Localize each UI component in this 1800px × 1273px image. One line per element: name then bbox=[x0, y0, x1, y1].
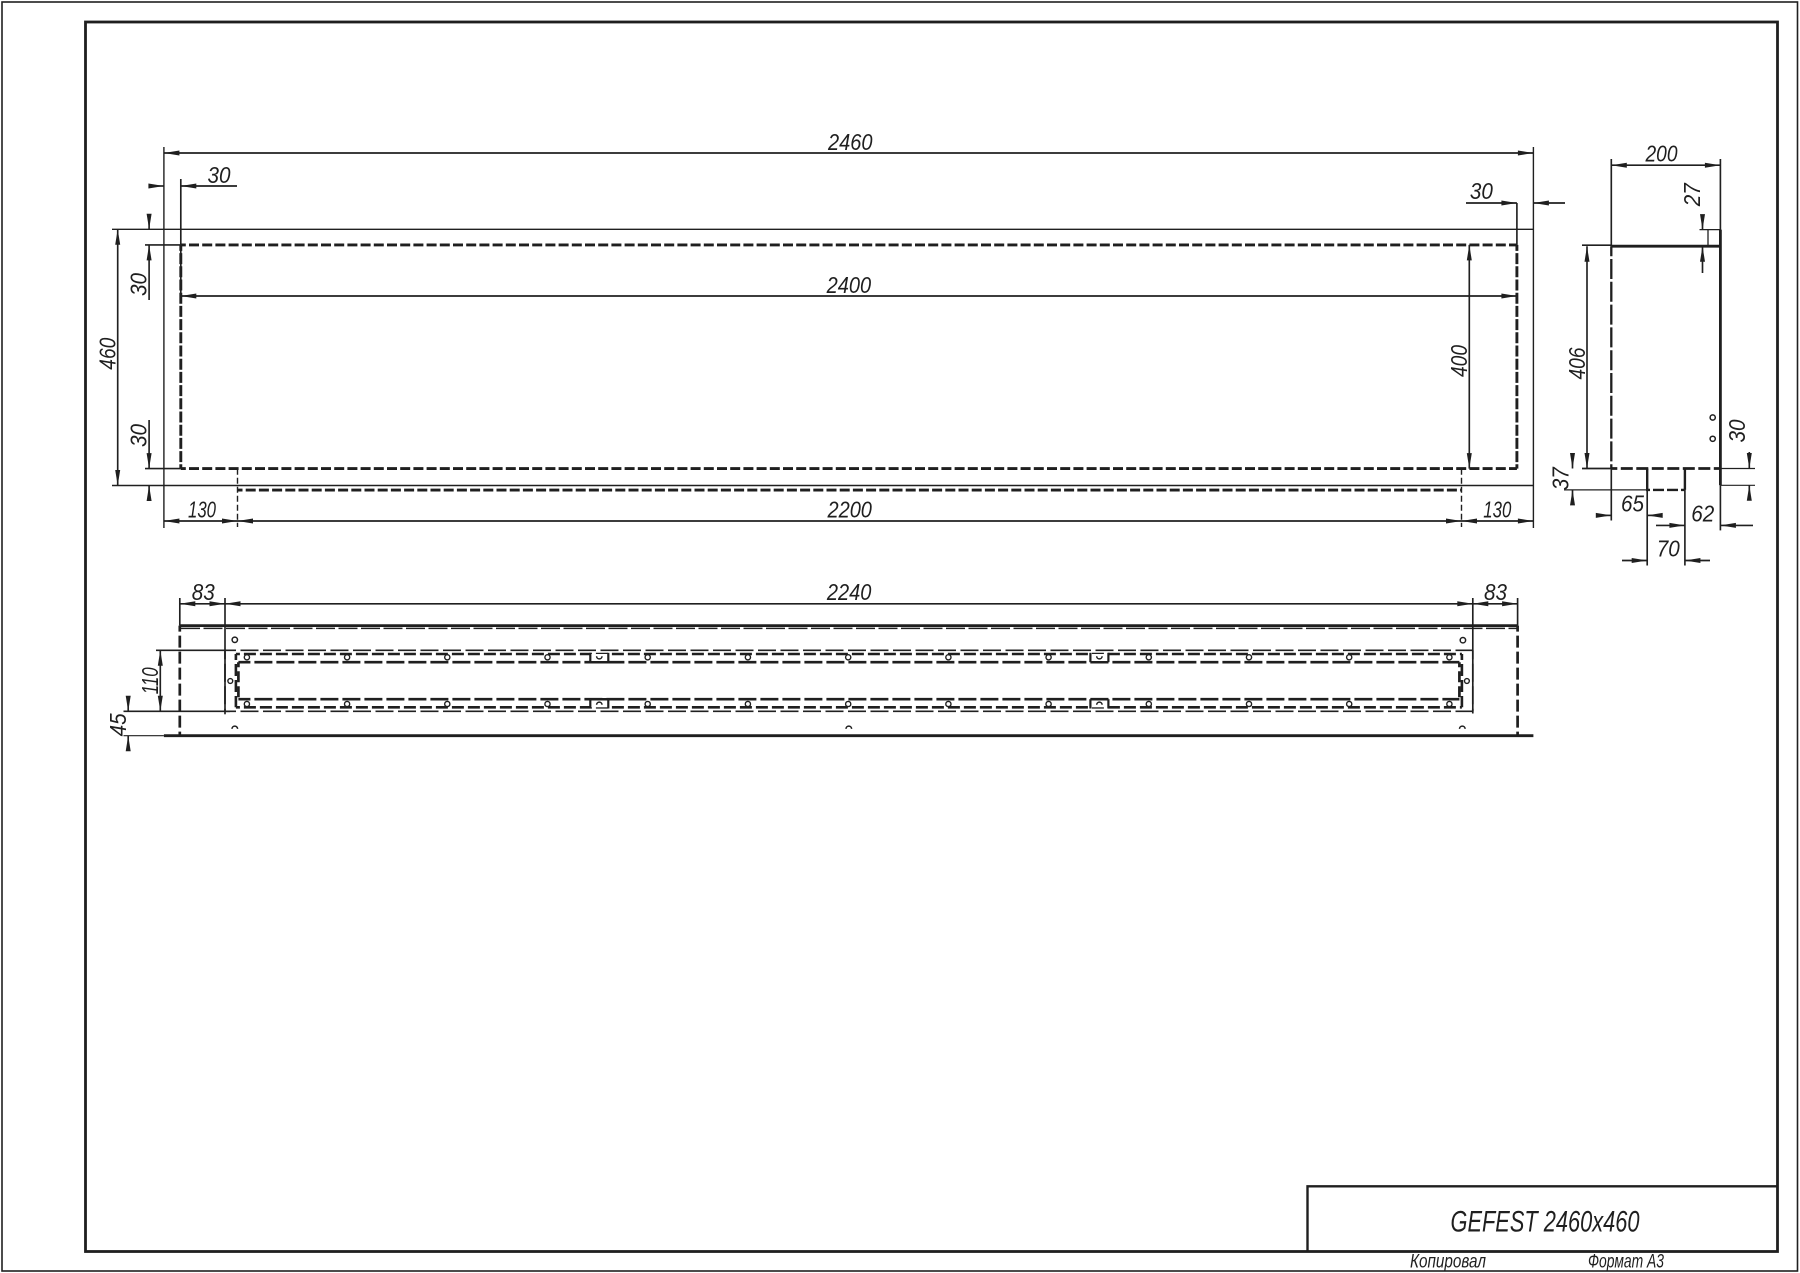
svg-text:2200: 2200 bbox=[827, 496, 872, 522]
svg-text:Копировал: Копировал bbox=[1410, 1252, 1486, 1273]
svg-text:GEFEST 2460x460: GEFEST 2460x460 bbox=[1451, 1206, 1640, 1239]
svg-text:2240: 2240 bbox=[826, 579, 871, 605]
svg-text:406: 406 bbox=[1564, 347, 1590, 380]
svg-text:400: 400 bbox=[1446, 345, 1472, 377]
svg-text:65: 65 bbox=[1621, 491, 1645, 517]
svg-text:27: 27 bbox=[1679, 182, 1705, 207]
svg-text:200: 200 bbox=[1645, 141, 1678, 167]
svg-text:45: 45 bbox=[105, 713, 131, 737]
svg-text:30: 30 bbox=[1470, 178, 1493, 204]
svg-text:83: 83 bbox=[1484, 579, 1507, 605]
svg-text:62: 62 bbox=[1691, 501, 1714, 527]
svg-text:2400: 2400 bbox=[826, 272, 871, 298]
svg-text:37: 37 bbox=[1548, 466, 1574, 490]
svg-text:30: 30 bbox=[126, 424, 152, 447]
svg-text:30: 30 bbox=[208, 162, 231, 188]
svg-text:Формат А3: Формат А3 bbox=[1588, 1252, 1664, 1273]
svg-text:30: 30 bbox=[1724, 420, 1750, 443]
svg-text:70: 70 bbox=[1657, 536, 1680, 562]
svg-text:130: 130 bbox=[188, 496, 216, 522]
svg-text:30: 30 bbox=[126, 273, 152, 296]
svg-text:460: 460 bbox=[95, 338, 121, 370]
svg-text:83: 83 bbox=[192, 579, 215, 605]
svg-text:130: 130 bbox=[1483, 496, 1511, 522]
svg-text:110: 110 bbox=[137, 667, 163, 694]
svg-text:2460: 2460 bbox=[827, 129, 872, 155]
